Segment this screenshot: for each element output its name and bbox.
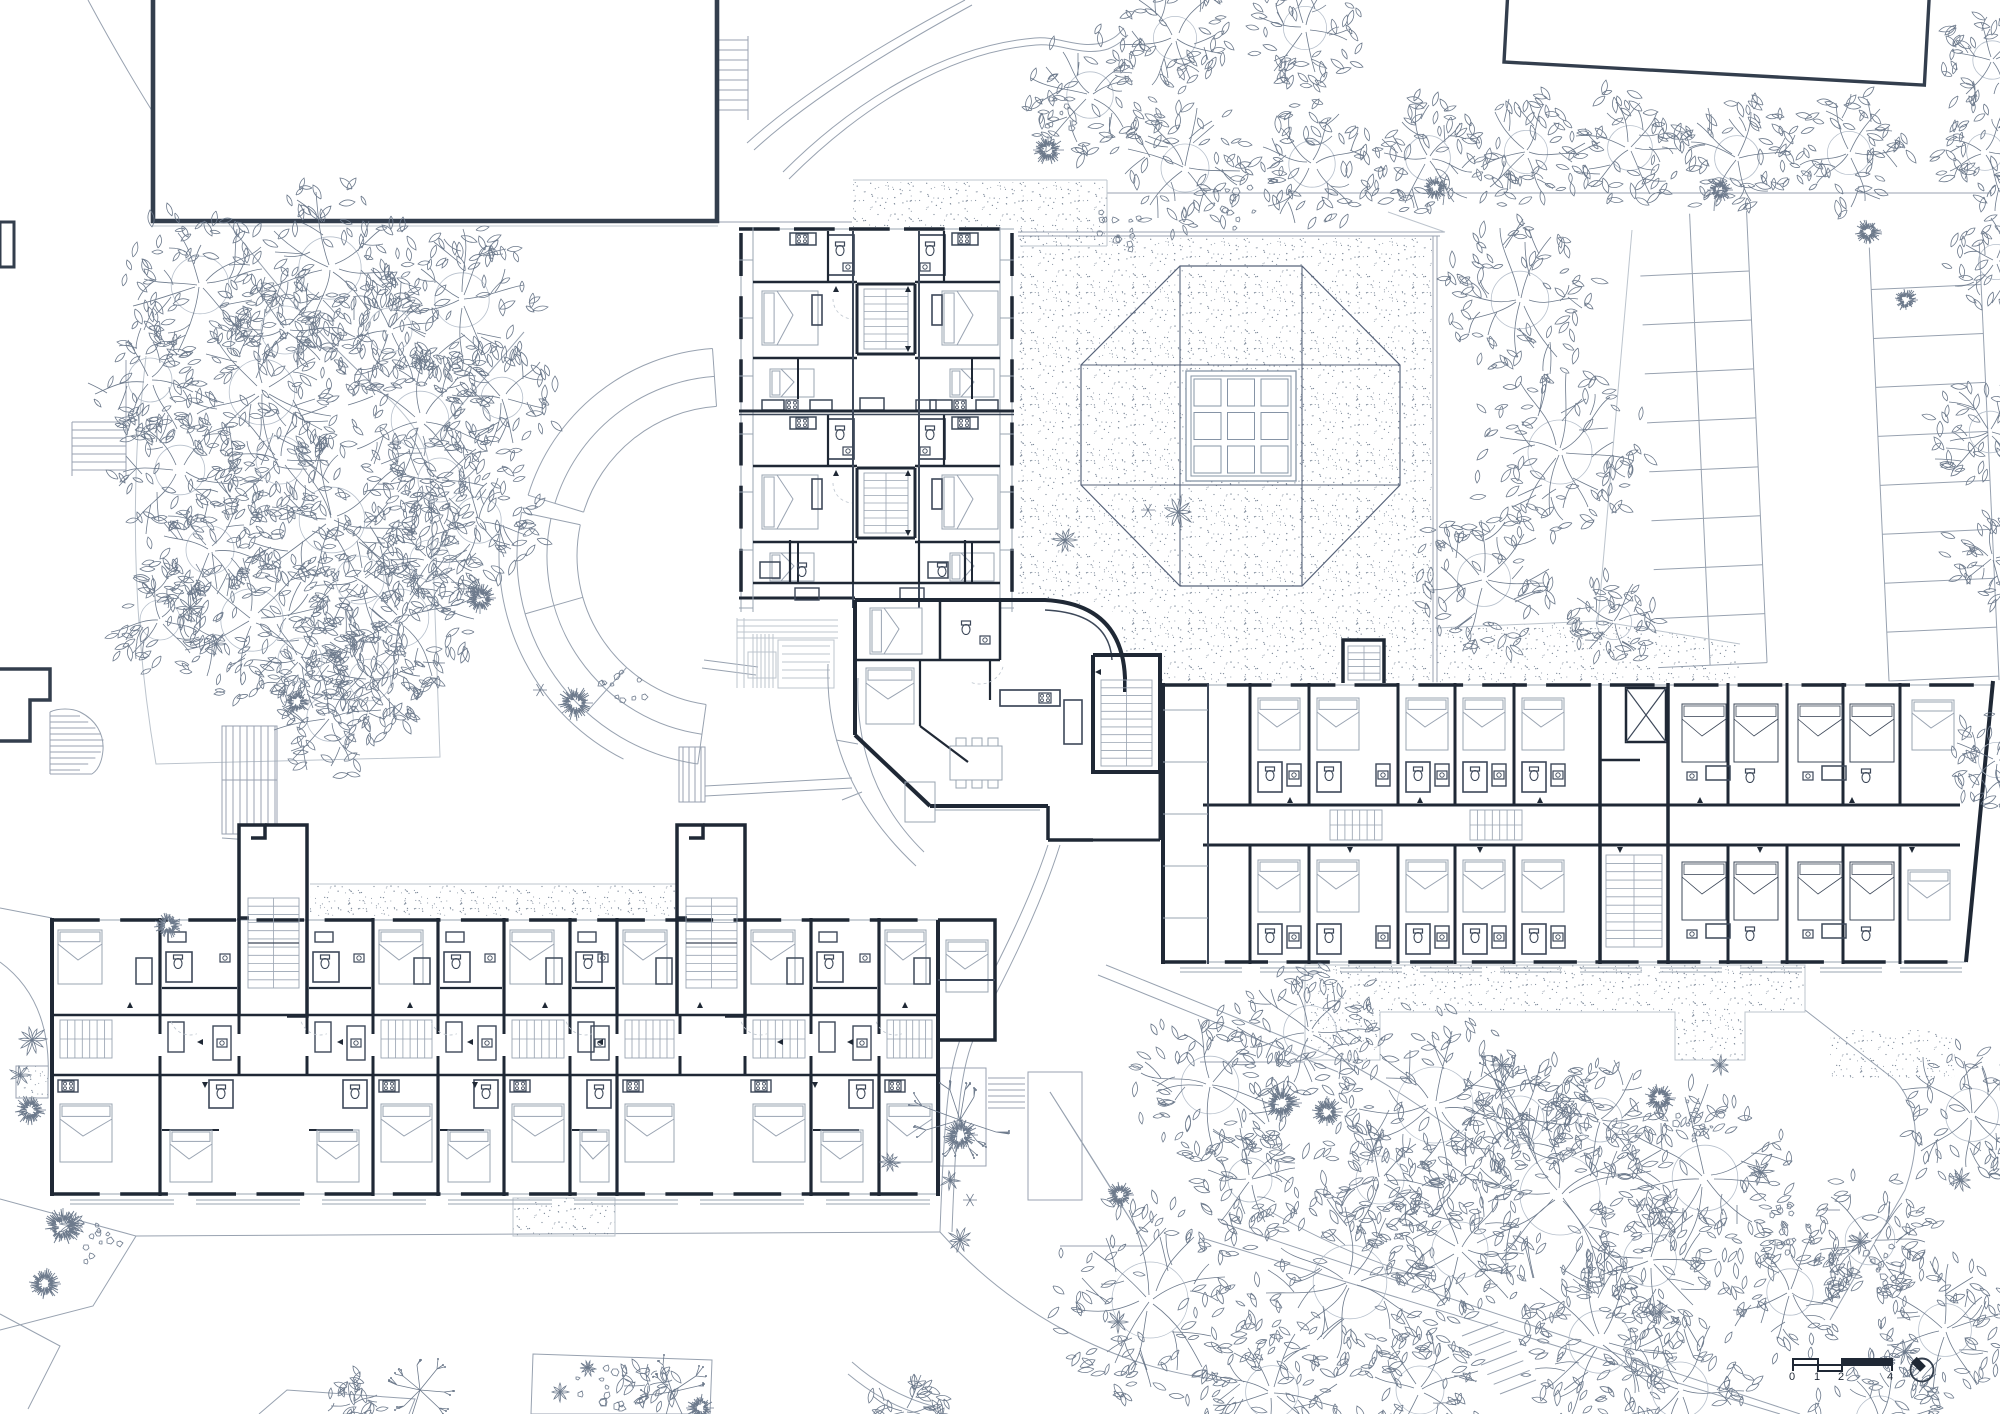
svg-text:4: 4 [1887, 1371, 1893, 1383]
svg-text:2: 2 [1838, 1371, 1844, 1383]
svg-text:1: 1 [1814, 1371, 1820, 1383]
svg-text:0: 0 [1789, 1371, 1795, 1383]
